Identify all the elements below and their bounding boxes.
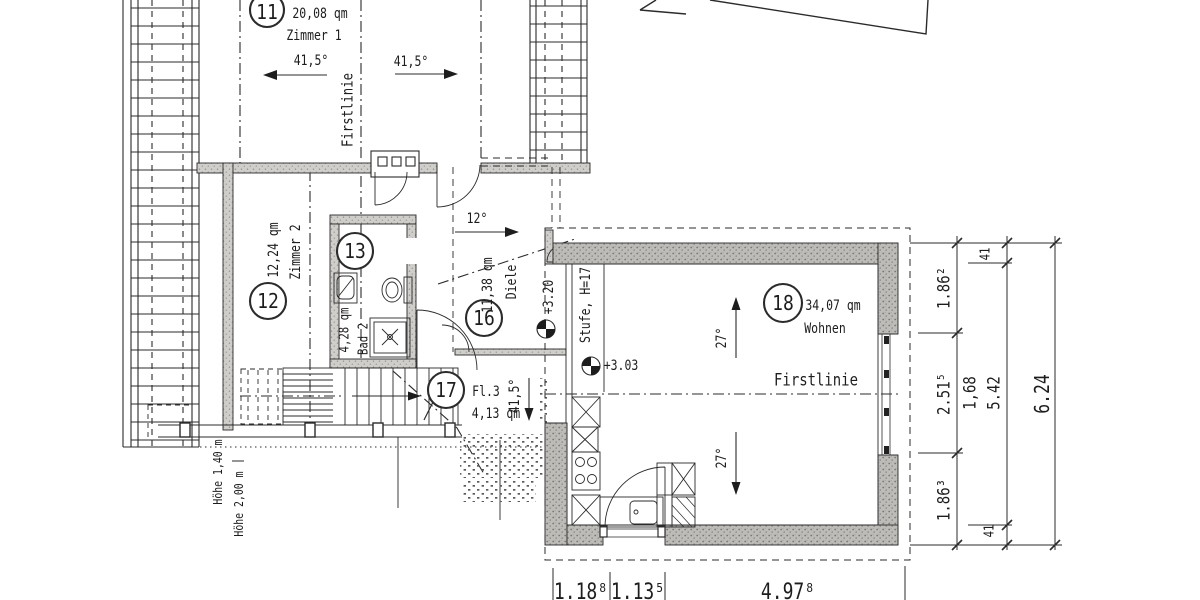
dim-right-41-bottom: 41	[984, 525, 997, 538]
firstlinie-horizontal-label: Firstlinie	[774, 373, 858, 390]
dim-right-542: 5.42	[987, 376, 1004, 410]
room-18-name-label: Wohnen	[804, 322, 845, 336]
level-303-label: +3.03	[604, 359, 639, 373]
room-11-area-label: 20,08 qm	[292, 7, 347, 21]
room-17-number: 17	[435, 380, 457, 400]
stairs	[241, 368, 458, 425]
dim-bottom-1135: 1.13⁵	[611, 582, 665, 600]
dim-right-186-bottom: 1.86³	[937, 479, 954, 521]
floor-plan: 11 20,08 qm Zimmer 1 41,5° 41,5° Firstli…	[0, 0, 1200, 600]
room-12-area-label: 12,24 qm	[267, 222, 281, 277]
room-17-name-label: Fl.3	[472, 385, 500, 399]
wohnen-angle-upper-label: 27°	[715, 328, 729, 349]
dormer-angle-label: 12°	[467, 212, 488, 226]
north-arrow-sketch	[640, 0, 928, 34]
fl3-angle-label: 41,5°	[508, 379, 522, 414]
dim-bottom-4978: 4.97⁸	[761, 582, 815, 600]
firstlinie-vertical-label: Firstlinie	[341, 73, 356, 147]
dim-bottom-1188: 1.18⁸	[554, 582, 608, 600]
chimney	[371, 151, 419, 177]
floor-plan-drawing	[0, 0, 1200, 600]
roof-strip-top	[530, 0, 587, 170]
room-12-number: 12	[257, 291, 279, 311]
room-16-number: 16	[473, 308, 495, 328]
level-320-label: +3.20	[542, 280, 556, 315]
dim-right-168: 1,68	[963, 376, 980, 410]
wohnen-door-bottom	[600, 526, 665, 537]
dim-right-251: 2.51⁵	[937, 373, 954, 415]
dim-right-186-top: 1.86²	[937, 267, 954, 309]
room-16-area-label: 11,38 qm	[481, 257, 495, 312]
room-18-area-label: 34,07 qm	[805, 299, 860, 313]
height-140-label: Höhe 1,40 m	[212, 439, 224, 504]
room-12-name-label: Zimmer 2	[289, 224, 303, 279]
room-13-name-label: Bad 2	[358, 323, 371, 355]
wohnen-angle-lower-label: 27°	[715, 448, 729, 469]
room-13-area-label: 4,28 qm	[339, 308, 352, 353]
roof-angle-right-label: 41,5°	[394, 55, 429, 69]
roof-angle-left-label: 41,5°	[294, 54, 329, 68]
room-13-number: 13	[344, 241, 366, 261]
dim-right-41-top: 41	[980, 248, 993, 261]
roof-strip-left	[123, 0, 199, 447]
knee-wall-band	[158, 423, 500, 520]
room-16-name-label: Diele	[505, 265, 519, 300]
step-label: Stufe, H=17	[579, 267, 593, 343]
room-11-name-label: Zimmer 1	[286, 29, 341, 43]
kitchen-fixtures	[572, 397, 695, 527]
height-200-label: Höhe 2,00 m	[233, 471, 245, 536]
room-18-number: 18	[772, 293, 794, 313]
dim-right-total: 6.24	[1032, 374, 1052, 414]
room-11-number: 11	[256, 2, 278, 22]
